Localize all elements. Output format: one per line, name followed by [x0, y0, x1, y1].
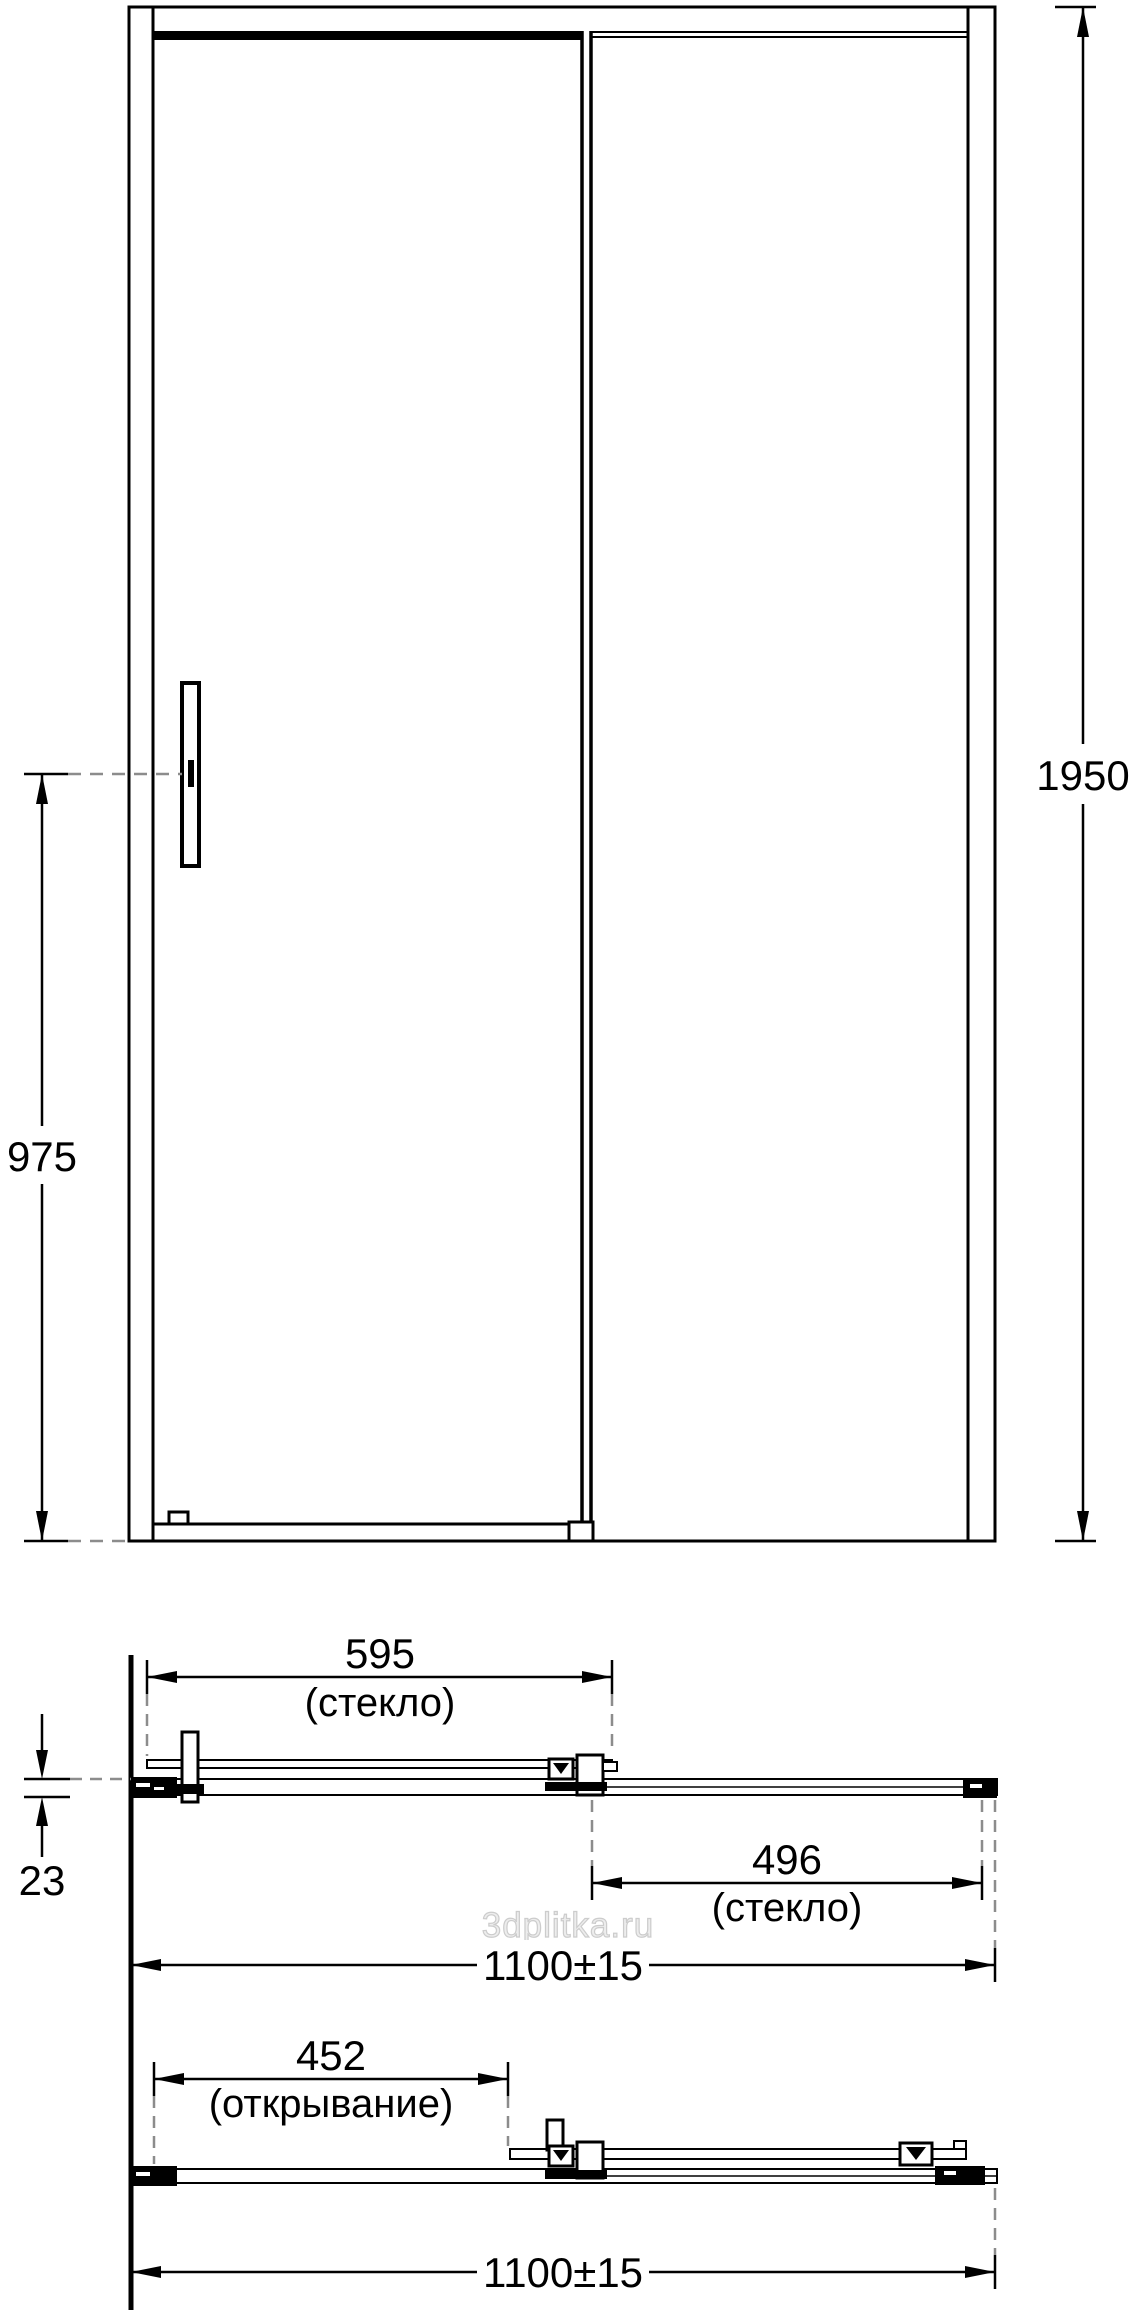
right-wall-profile [968, 7, 995, 1541]
dim-975-arrow-down [36, 1511, 48, 1541]
handle-grip-slot [188, 760, 194, 787]
drawing-canvas: 1950 975 [0, 0, 1137, 2310]
left-wall-connector-open [129, 2166, 177, 2186]
door-bottom-guide [169, 1512, 188, 1524]
plan-view-closed [129, 1732, 997, 1802]
dim-452-note: (открывание) [209, 2082, 454, 2126]
front-view [129, 7, 995, 1541]
dim-595-note: (стекло) [305, 1681, 456, 1725]
door-left-roller [176, 1784, 204, 1794]
door-right-roller-open [900, 2143, 932, 2165]
dim-23-label: 23 [19, 1857, 66, 1904]
dim-1100-closed-label: 1100±15 [483, 1942, 643, 1989]
center-roller-bracket [545, 1755, 617, 1795]
center-roller-bracket-open [545, 2120, 607, 2179]
plan-view-open [129, 2120, 997, 2186]
right-wall-connector [963, 1778, 997, 1798]
dim-496-arrow-left [592, 1877, 622, 1889]
dim-1100-open-label: 1100±15 [483, 2249, 643, 2296]
dim-1950-label: 1950 [1036, 752, 1129, 799]
dim-595-arrow-left [147, 1671, 177, 1683]
dim-496-label: 496 [752, 1836, 822, 1883]
dim-452-arrow-right [478, 2073, 508, 2085]
door-end-hook [954, 2141, 966, 2149]
divider-bottom-block [569, 1522, 593, 1541]
dim-1100c-arrow-left [131, 1959, 161, 1971]
dim-1100c-arrow-right [965, 1959, 995, 1971]
left-wall-connector [129, 1777, 177, 1798]
dim-975-label: 975 [7, 1133, 77, 1180]
door-glass-plan [147, 1760, 612, 1768]
dim-23 [24, 1714, 131, 1857]
door-top-rail [153, 31, 583, 40]
dim-1100o-arrow-left [131, 2266, 161, 2278]
dim-452-arrow-left [154, 2073, 184, 2085]
dim-1100o-arrow-right [965, 2266, 995, 2278]
dim-1950-arrow-up [1077, 7, 1089, 37]
dim-595-arrow-right [582, 1671, 612, 1683]
dim-975-arrow-up [36, 774, 48, 804]
dim-496-arrow-right [952, 1877, 982, 1889]
dim-595-label: 595 [345, 1630, 415, 1677]
shower-door-drawing: 1950 975 [0, 0, 1137, 2310]
door-handle [182, 683, 199, 866]
watermark-text: 3dplitka.ru [482, 1906, 654, 1945]
dim-1950-arrow-down [1077, 1511, 1089, 1541]
dim-23-arrow-up [36, 1797, 48, 1826]
dim-23-arrow-down [36, 1750, 48, 1779]
right-wall-connector-open [935, 2166, 985, 2185]
dim-452-label: 452 [296, 2032, 366, 2079]
dim-496-note: (стекло) [712, 1886, 863, 1930]
